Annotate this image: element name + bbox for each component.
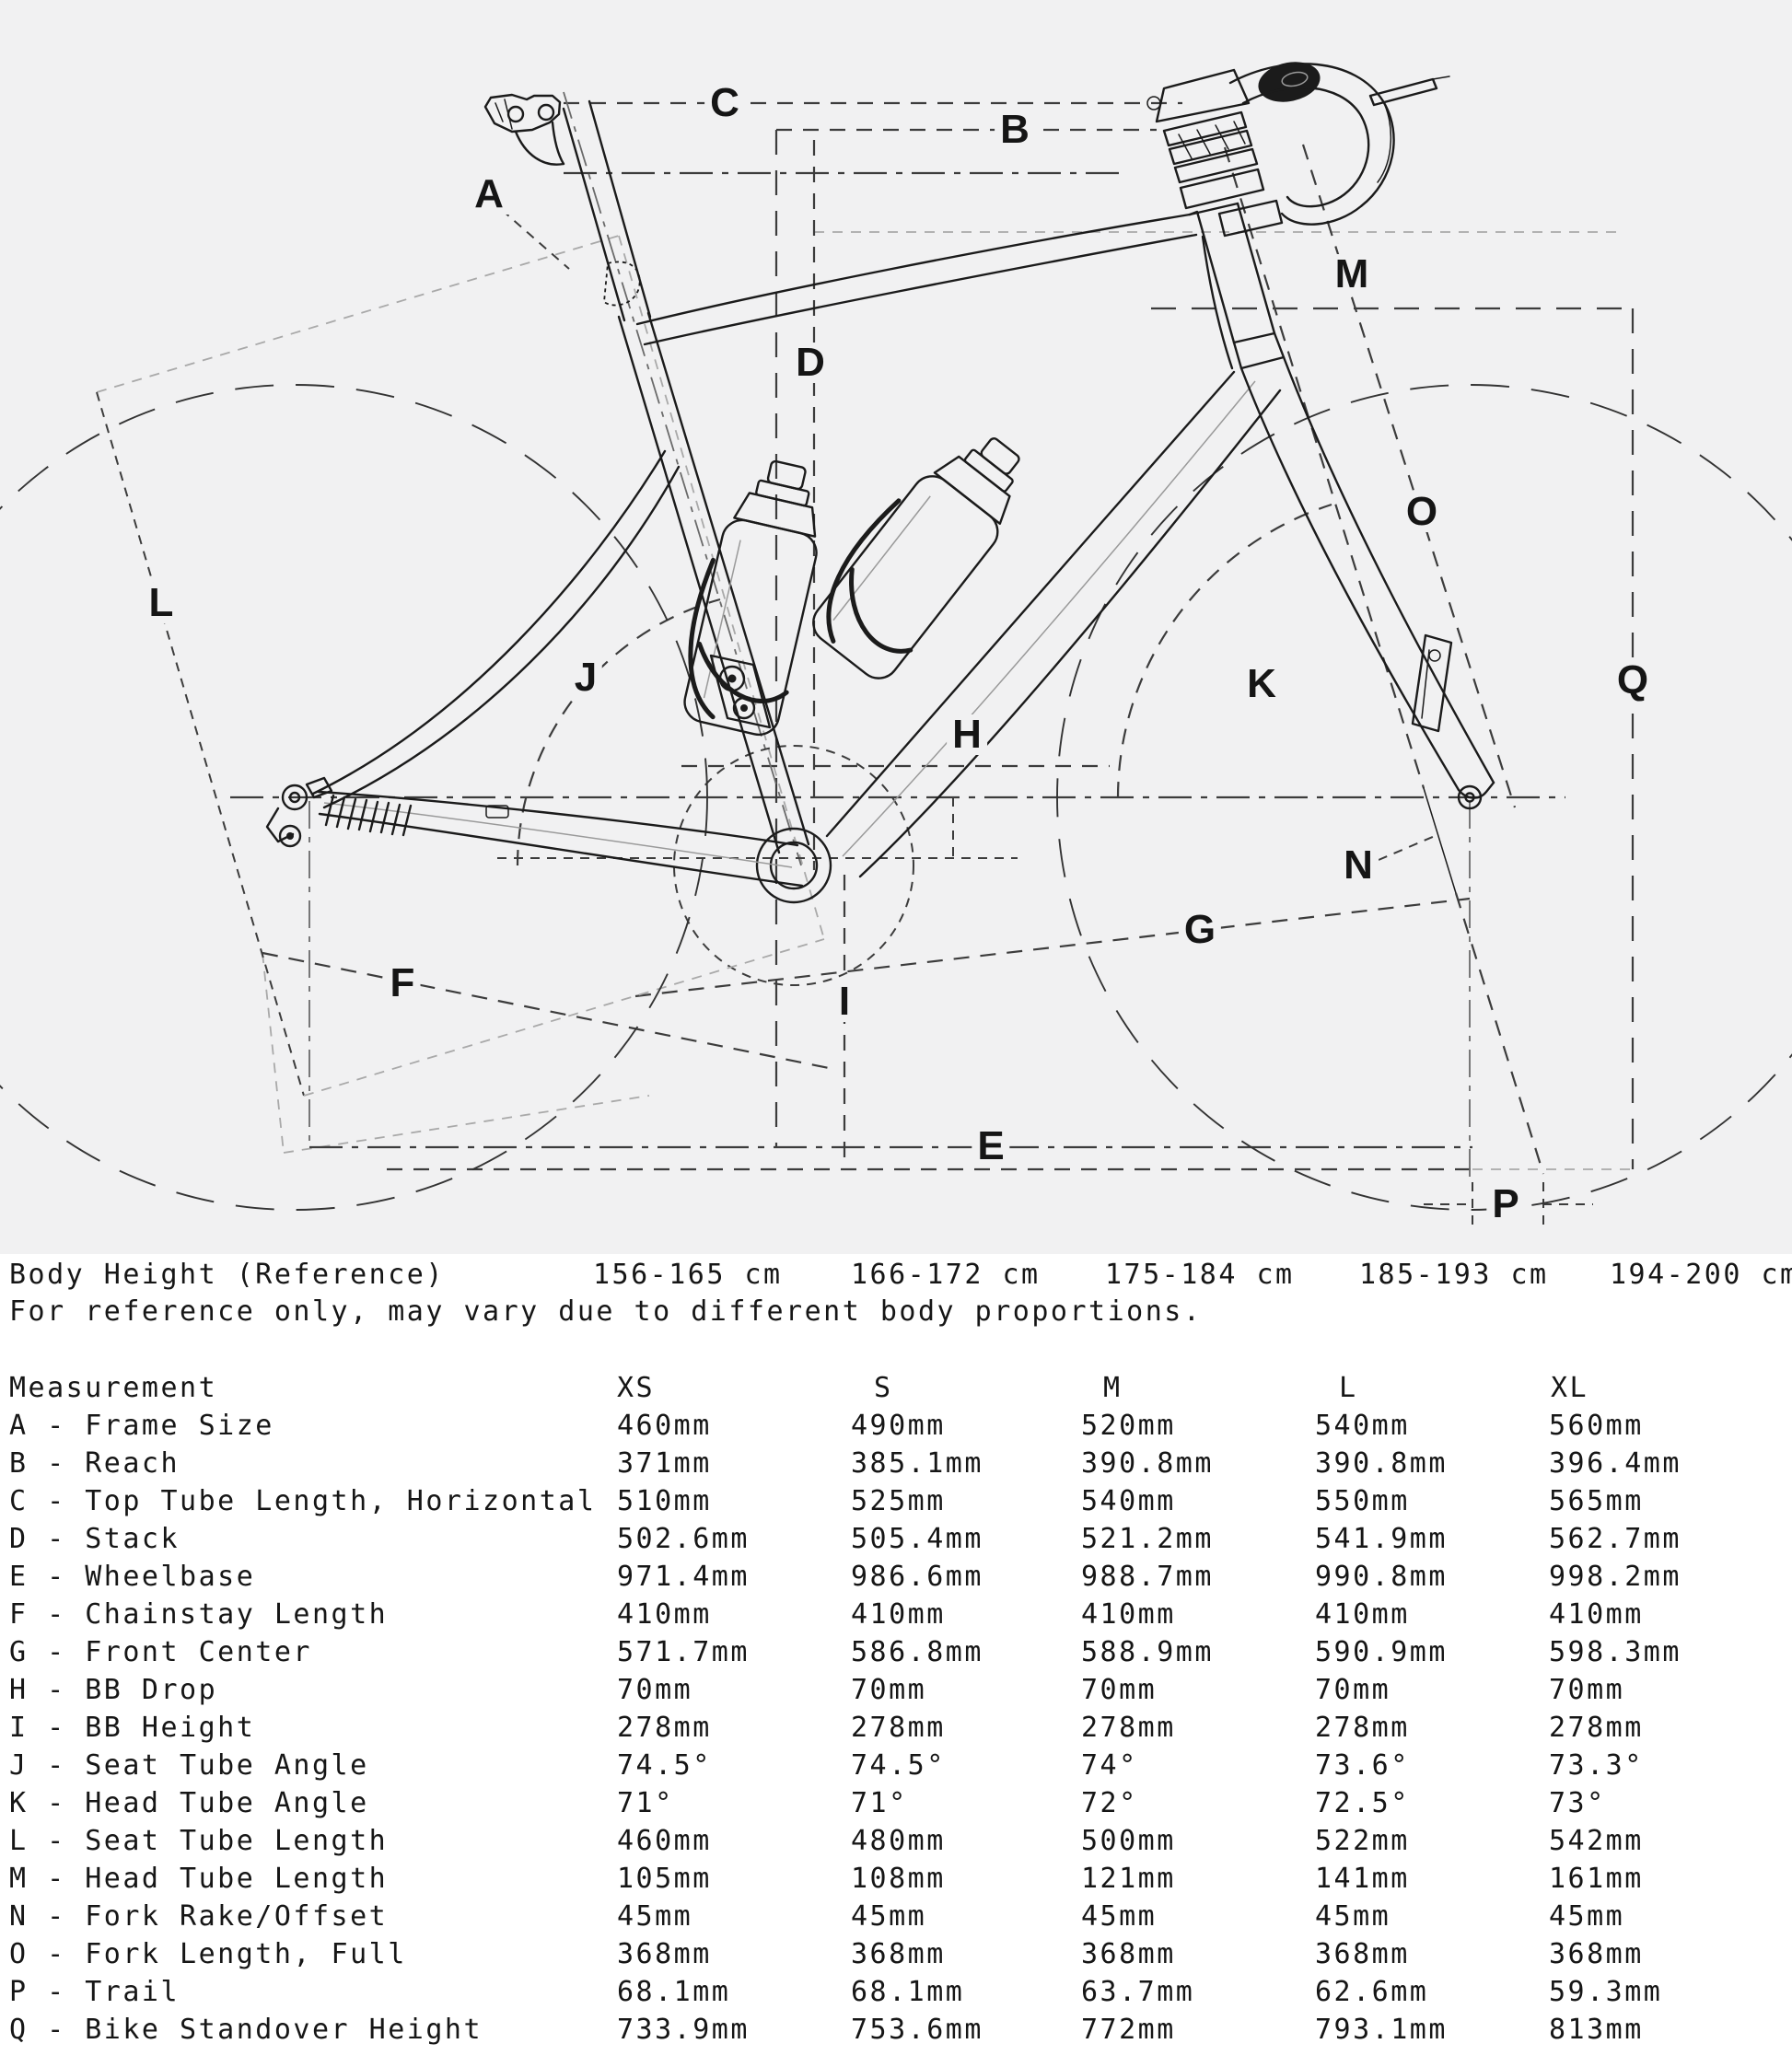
row-label: F - Chainstay Length: [9, 1598, 388, 1632]
row-label: P - Trail: [9, 1976, 180, 2009]
dim-label-k: K: [1241, 664, 1282, 704]
cell: 68.1mm: [617, 1976, 730, 2009]
cell: 45mm: [851, 1900, 926, 1933]
cell: 520mm: [1081, 1410, 1176, 1443]
body-height-value: 166-172 cm: [851, 1259, 1041, 1292]
fork: [1234, 333, 1494, 808]
cell: 971.4mm: [617, 1561, 750, 1594]
cell: 490mm: [851, 1410, 946, 1443]
measurement-header: Measurement: [9, 1372, 217, 1405]
cell: 278mm: [1549, 1712, 1644, 1745]
cell: 72.5°: [1315, 1787, 1410, 1820]
cell: 988.7mm: [1081, 1561, 1214, 1594]
dimension-lines: [97, 92, 1633, 1225]
cell: 998.2mm: [1549, 1561, 1681, 1594]
row-label: E - Wheelbase: [9, 1561, 255, 1594]
cell: 525mm: [851, 1485, 946, 1518]
dim-label-a: A: [469, 174, 509, 215]
cell: 772mm: [1081, 2014, 1176, 2047]
cell: 141mm: [1315, 1863, 1410, 1896]
cell: 74.5°: [851, 1749, 946, 1782]
cell: 68.1mm: [851, 1976, 964, 2009]
cell: 368mm: [617, 1938, 712, 1971]
cell: 70mm: [851, 1674, 926, 1707]
row-label: C - Top Tube Length, Horizontal: [9, 1485, 596, 1518]
body-height-value: 175-184 cm: [1105, 1259, 1295, 1292]
cell: 74°: [1081, 1749, 1138, 1782]
cell: 161mm: [1549, 1863, 1644, 1896]
cell: 121mm: [1081, 1863, 1176, 1896]
size-header-l: L: [1339, 1372, 1358, 1405]
cell: 500mm: [1081, 1825, 1176, 1858]
body-height-note: For reference only, may vary due to diff…: [9, 1295, 1202, 1329]
cell: 510mm: [617, 1485, 712, 1518]
bike-geometry-drawing: [0, 0, 1792, 1254]
cell: 278mm: [1315, 1712, 1410, 1745]
dim-label-f: F: [385, 963, 421, 1004]
cell: 571.7mm: [617, 1636, 750, 1669]
dim-label-m: M: [1330, 254, 1375, 295]
row-label: B - Reach: [9, 1447, 180, 1481]
cell: 73.3°: [1549, 1749, 1644, 1782]
dim-label-b: B: [995, 110, 1035, 150]
cell: 63.7mm: [1081, 1976, 1194, 2009]
cell: 278mm: [851, 1712, 946, 1745]
cell: 410mm: [1081, 1598, 1176, 1632]
body-height-value: 156-165 cm: [593, 1259, 783, 1292]
light-dimension-lines: [97, 232, 1633, 1169]
row-label: N - Fork Rake/Offset: [9, 1900, 388, 1933]
row-label: L - Seat Tube Length: [9, 1825, 388, 1858]
cell: 565mm: [1549, 1485, 1644, 1518]
size-header-xl: XL: [1551, 1372, 1588, 1405]
cell: 390.8mm: [1315, 1447, 1448, 1481]
row-label: K - Head Tube Angle: [9, 1787, 369, 1820]
cell: 541.9mm: [1315, 1523, 1448, 1556]
cell: 105mm: [617, 1863, 712, 1896]
cell: 62.6mm: [1315, 1976, 1428, 2009]
geometry-page: ABCDEFGHIJKLMNOPQ Body Height (Reference…: [0, 0, 1792, 2067]
cell: 753.6mm: [851, 2014, 983, 2047]
cell: 368mm: [1315, 1938, 1410, 1971]
cell: 371mm: [617, 1447, 712, 1481]
down-tube-bottle: [798, 412, 1045, 687]
cell: 990.8mm: [1315, 1561, 1448, 1594]
cell: 586.8mm: [851, 1636, 983, 1669]
cell: 813mm: [1549, 2014, 1644, 2047]
cell: 59.3mm: [1549, 1976, 1662, 2009]
cell: 542mm: [1549, 1825, 1644, 1858]
row-label: G - Front Center: [9, 1636, 312, 1669]
cell: 396.4mm: [1549, 1447, 1681, 1481]
dim-label-i: I: [833, 981, 855, 1022]
cell: 793.1mm: [1315, 2014, 1448, 2047]
dim-label-o: O: [1401, 492, 1443, 532]
cell: 45mm: [1315, 1900, 1391, 1933]
row-label: J - Seat Tube Angle: [9, 1749, 369, 1782]
row-label: O - Fork Length, Full: [9, 1938, 407, 1971]
cell: 986.6mm: [851, 1561, 983, 1594]
cell: 460mm: [617, 1410, 712, 1443]
dim-label-c: C: [704, 83, 745, 123]
cell: 385.1mm: [851, 1447, 983, 1481]
row-label: A - Frame Size: [9, 1410, 274, 1443]
cell: 590.9mm: [1315, 1636, 1448, 1669]
cell: 45mm: [617, 1900, 692, 1933]
row-label: M - Head Tube Length: [9, 1863, 388, 1896]
size-header-xs: XS: [617, 1372, 655, 1405]
dim-label-d: D: [790, 343, 831, 383]
body-height-value: 185-193 cm: [1359, 1259, 1549, 1292]
cell: 71°: [851, 1787, 908, 1820]
size-header-m: M: [1103, 1372, 1123, 1405]
cell: 278mm: [617, 1712, 712, 1745]
seatpost-head: [485, 95, 564, 165]
dim-label-p: P: [1486, 1184, 1524, 1225]
cell: 70mm: [1081, 1674, 1157, 1707]
cell: 550mm: [1315, 1485, 1410, 1518]
cell: 410mm: [1315, 1598, 1410, 1632]
cell: 74.5°: [617, 1749, 712, 1782]
cell: 278mm: [1081, 1712, 1176, 1745]
dim-label-j: J: [569, 657, 602, 698]
cell: 540mm: [1081, 1485, 1176, 1518]
dim-label-h: H: [947, 714, 987, 755]
row-label: D - Stack: [9, 1523, 180, 1556]
cell: 45mm: [1081, 1900, 1157, 1933]
cell: 505.4mm: [851, 1523, 983, 1556]
cell: 588.9mm: [1081, 1636, 1214, 1669]
cell: 522mm: [1315, 1825, 1410, 1858]
cell: 73.6°: [1315, 1749, 1410, 1782]
cell: 70mm: [1315, 1674, 1391, 1707]
cell: 410mm: [1549, 1598, 1644, 1632]
cell: 560mm: [1549, 1410, 1644, 1443]
cell: 502.6mm: [617, 1523, 750, 1556]
dim-label-g: G: [1179, 910, 1221, 950]
row-label: I - BB Height: [9, 1712, 255, 1745]
cell: 72°: [1081, 1787, 1138, 1820]
cell: 45mm: [1549, 1900, 1624, 1933]
cell: 598.3mm: [1549, 1636, 1681, 1669]
cell: 540mm: [1315, 1410, 1410, 1443]
dim-label-n: N: [1338, 845, 1379, 886]
cell: 73°: [1549, 1787, 1606, 1820]
row-label: H - BB Drop: [9, 1674, 217, 1707]
handlebar-stem: [1147, 56, 1449, 236]
cell: 368mm: [1549, 1938, 1644, 1971]
body-height-label: Body Height (Reference): [9, 1259, 445, 1292]
cell: 460mm: [617, 1825, 712, 1858]
seat-tube-bottle: [672, 451, 836, 738]
size-header-s: S: [874, 1372, 893, 1405]
frame: [267, 101, 1280, 902]
dim-label-e: E: [972, 1126, 1009, 1167]
geometry-diagram: ABCDEFGHIJKLMNOPQ: [0, 0, 1792, 1254]
cell: 733.9mm: [617, 2014, 750, 2047]
cell: 562.7mm: [1549, 1523, 1681, 1556]
cell: 480mm: [851, 1825, 946, 1858]
cell: 521.2mm: [1081, 1523, 1214, 1556]
dim-label-q: Q: [1612, 660, 1654, 701]
cell: 70mm: [617, 1674, 692, 1707]
row-label: Q - Bike Standover Height: [9, 2014, 483, 2047]
cell: 108mm: [851, 1863, 946, 1896]
cell: 410mm: [851, 1598, 946, 1632]
cell: 70mm: [1549, 1674, 1624, 1707]
cell: 71°: [617, 1787, 674, 1820]
body-height-value: 194-200 cm: [1610, 1259, 1792, 1292]
cell: 368mm: [851, 1938, 946, 1971]
cell: 368mm: [1081, 1938, 1176, 1971]
cell: 410mm: [617, 1598, 712, 1632]
cell: 390.8mm: [1081, 1447, 1214, 1481]
dim-label-l: L: [144, 583, 180, 623]
